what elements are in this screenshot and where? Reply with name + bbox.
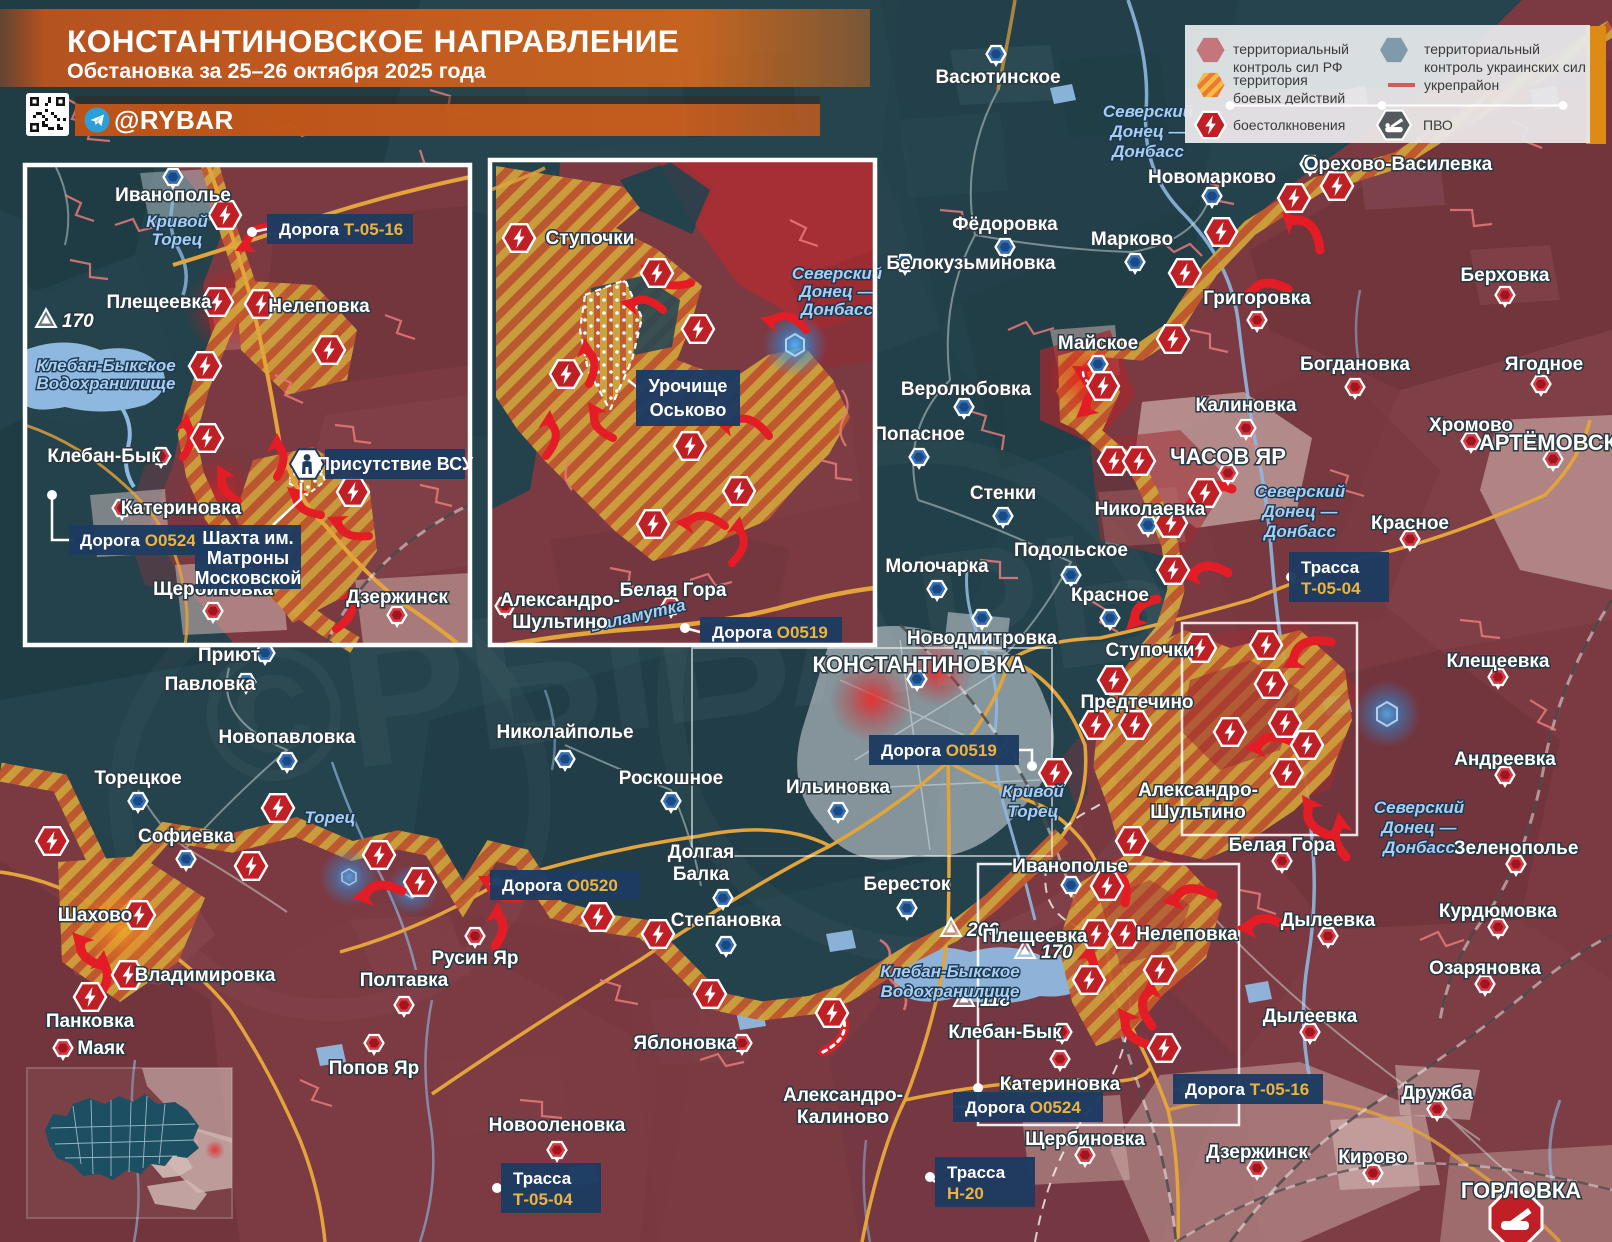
- svg-text:Щербиновка: Щербиновка: [1025, 1129, 1145, 1150]
- svg-text:контроль украинских сил: контроль украинских сил: [1424, 59, 1586, 75]
- svg-text:Донец —: Донец —: [1108, 122, 1186, 141]
- svg-text:Катериновка: Катериновка: [121, 498, 242, 519]
- svg-text:Шахово: Шахово: [58, 905, 132, 926]
- svg-text:Водохранилище: Водохранилище: [37, 374, 176, 393]
- svg-text:Плещеевка: Плещеевка: [107, 292, 212, 313]
- svg-text:Александро-: Александро-: [783, 1085, 903, 1106]
- svg-text:боестолкновения: боестолкновения: [1233, 117, 1345, 133]
- svg-text:Новодмитровка: Новодмитровка: [907, 628, 1058, 649]
- svg-text:Николайполье: Николайполье: [496, 722, 633, 743]
- svg-text:Степановка: Степановка: [671, 910, 782, 931]
- svg-text:Предтечино: Предтечино: [1080, 692, 1193, 713]
- svg-text:Донбасс: Донбасс: [1381, 838, 1455, 857]
- svg-text:АРТЁМОВСК: АРТЁМОВСК: [1479, 430, 1612, 455]
- svg-text:Дылеевка: Дылеевка: [1281, 910, 1376, 931]
- svg-text:Александро-: Александро-: [1138, 780, 1258, 801]
- svg-text:Клебан-Быкское: Клебан-Быкское: [880, 962, 1019, 981]
- svg-text:Северский: Северский: [1374, 798, 1465, 817]
- svg-text:Трасса: Трасса: [1301, 558, 1360, 577]
- svg-text:Кирово: Кирово: [1338, 1147, 1408, 1168]
- svg-text:Дружба: Дружба: [1401, 1083, 1473, 1104]
- svg-text:Владимировка: Владимировка: [135, 965, 276, 986]
- svg-text:Андреевка: Андреевка: [1454, 749, 1556, 770]
- svg-text:Орехово-Василевка: Орехово-Василевка: [1304, 154, 1493, 175]
- svg-text:ЧАСОВ ЯР: ЧАСОВ ЯР: [1170, 444, 1286, 469]
- svg-text:Плещеевка: Плещеевка: [983, 926, 1088, 947]
- svg-text:Белая Гора: Белая Гора: [620, 580, 727, 601]
- svg-text:Катериновка: Катериновка: [1000, 1074, 1121, 1095]
- svg-text:Нелеповка: Нелеповка: [268, 296, 370, 317]
- svg-text:Богдановка: Богдановка: [1300, 354, 1410, 375]
- svg-text:Клебан-Бык: Клебан-Бык: [948, 1022, 1062, 1043]
- svg-text:Шахта им.: Шахта им.: [202, 528, 293, 548]
- svg-text:Северский: Северский: [1255, 482, 1346, 501]
- svg-text:Курдюмовка: Курдюмовка: [1439, 901, 1558, 922]
- svg-text:Торецкое: Торецкое: [94, 768, 181, 789]
- svg-text:Попов Яр: Попов Яр: [329, 1058, 420, 1079]
- svg-text:Донбасс: Донбасс: [799, 300, 873, 319]
- svg-text:Донбасс: Донбасс: [1262, 522, 1336, 541]
- svg-text:Яблоновка: Яблоновка: [633, 1033, 737, 1054]
- svg-text:Дорога О0524: Дорога О0524: [965, 1098, 1081, 1117]
- svg-text:КОНСТАНТИНОВКА: КОНСТАНТИНОВКА: [812, 652, 1025, 677]
- svg-text:Трасса: Трасса: [947, 1163, 1006, 1182]
- svg-text:Матроны: Матроны: [207, 548, 289, 568]
- svg-text:Нелеповка: Нелеповка: [1136, 924, 1238, 945]
- svg-text:Стенки: Стенки: [970, 483, 1036, 504]
- svg-text:@RYBAR: @RYBAR: [114, 105, 234, 135]
- svg-text:Полтавка: Полтавка: [360, 970, 449, 991]
- svg-text:Панковка: Панковка: [46, 1011, 135, 1032]
- svg-text:Дорога О0519: Дорога О0519: [712, 623, 828, 642]
- svg-text:Красное: Красное: [1371, 513, 1449, 534]
- svg-text:Балка: Балка: [673, 864, 730, 885]
- svg-text:КОНСТАНТИНОВСКОЕ НАПРАВЛЕНИЕ: КОНСТАНТИНОВСКОЕ НАПРАВЛЕНИЕ: [67, 23, 679, 59]
- svg-text:Торец: Торец: [305, 808, 356, 827]
- svg-text:Донец —: Донец —: [797, 282, 875, 301]
- svg-text:Новопавловка: Новопавловка: [218, 727, 355, 748]
- svg-text:Софиевка: Софиевка: [138, 826, 234, 847]
- svg-text:ПВО: ПВО: [1423, 117, 1453, 133]
- svg-text:Фёдоровка: Фёдоровка: [952, 214, 1058, 235]
- svg-text:Александро-: Александро-: [500, 590, 620, 611]
- svg-text:Николаевка: Николаевка: [1095, 499, 1206, 520]
- svg-text:Приют: Приют: [198, 645, 260, 666]
- svg-text:Дорога О0524: Дорога О0524: [80, 531, 196, 550]
- svg-text:Веролюбовка: Веролюбовка: [901, 379, 1032, 400]
- svg-text:Белая Гора: Белая Гора: [1229, 835, 1336, 856]
- svg-text:Бересток: Бересток: [864, 874, 951, 895]
- svg-text:Майское: Майское: [1058, 333, 1138, 354]
- svg-text:Маяк: Маяк: [77, 1038, 125, 1059]
- svg-text:территория: территория: [1233, 72, 1308, 88]
- svg-text:Калиново: Калиново: [797, 1107, 889, 1128]
- svg-text:Клебан-Быкское: Клебан-Быкское: [36, 356, 175, 375]
- svg-text:Северский: Северский: [1103, 102, 1194, 121]
- svg-text:Московской: Московской: [195, 568, 302, 588]
- svg-text:Григоровка: Григоровка: [1203, 288, 1311, 309]
- svg-text:Т-05-04: Т-05-04: [513, 1190, 573, 1209]
- svg-text:Роскошное: Роскошное: [619, 768, 723, 789]
- svg-text:Трасса: Трасса: [513, 1169, 572, 1188]
- svg-text:Северский: Северский: [792, 264, 883, 283]
- svg-text:Дзержинск: Дзержинск: [346, 587, 448, 608]
- svg-text:Урочище: Урочище: [649, 376, 728, 396]
- svg-text:Клещеевка: Клещеевка: [1447, 651, 1550, 672]
- svg-text:Дорога О0520: Дорога О0520: [502, 876, 618, 895]
- svg-text:Молочарка: Молочарка: [885, 556, 989, 577]
- svg-text:Новооленовка: Новооленовка: [489, 1115, 626, 1136]
- svg-text:170: 170: [62, 311, 94, 332]
- svg-text:Новомарково: Новомарково: [1148, 167, 1276, 188]
- svg-text:Кривой: Кривой: [1002, 782, 1064, 801]
- svg-text:Иванополье: Иванополье: [1012, 856, 1128, 877]
- svg-text:Торец: Торец: [1008, 802, 1059, 821]
- svg-text:Водохранилище: Водохранилище: [881, 982, 1020, 1001]
- svg-text:Донец —: Донец —: [1260, 502, 1338, 521]
- svg-text:Торец: Торец: [152, 230, 203, 249]
- svg-text:Васютинское: Васютинское: [935, 67, 1060, 88]
- svg-text:Дорога Т-05-16: Дорога Т-05-16: [279, 220, 403, 239]
- svg-text:Ступочки: Ступочки: [546, 228, 635, 249]
- svg-text:ГОРЛОВКА: ГОРЛОВКА: [1461, 1178, 1581, 1203]
- svg-text:Долгая: Долгая: [668, 842, 735, 863]
- svg-text:Кривой: Кривой: [146, 212, 208, 231]
- svg-text:Донбасс: Донбасс: [1110, 142, 1184, 161]
- svg-text:Берховка: Берховка: [1460, 265, 1549, 286]
- svg-text:Белокузьминовка: Белокузьминовка: [886, 253, 1056, 274]
- svg-text:Н-20: Н-20: [947, 1184, 984, 1203]
- svg-text:Дылеевка: Дылеевка: [1263, 1006, 1358, 1027]
- svg-text:территориальный: территориальный: [1233, 41, 1349, 57]
- svg-text:Озаряновка: Озаряновка: [1429, 958, 1541, 979]
- svg-text:Присутствие ВСУ: Присутствие ВСУ: [317, 454, 474, 474]
- svg-text:Красное: Красное: [1071, 585, 1149, 606]
- svg-text:Подольское: Подольское: [1014, 540, 1128, 561]
- svg-text:территориальный: территориальный: [1424, 41, 1540, 57]
- svg-text:Дзержинск: Дзержинск: [1206, 1142, 1308, 1163]
- svg-text:Калиновка: Калиновка: [1196, 395, 1297, 416]
- svg-text:Ильиновка: Ильиновка: [786, 777, 890, 798]
- svg-text:укрепрайон: укрепрайон: [1424, 77, 1499, 93]
- svg-text:Т-05-04: Т-05-04: [1301, 579, 1361, 598]
- svg-text:Ступочки: Ступочки: [1106, 640, 1195, 661]
- svg-text:Иванополье: Иванополье: [115, 185, 231, 206]
- svg-text:Русин Яр: Русин Яр: [431, 948, 518, 969]
- svg-text:Дорога О0519: Дорога О0519: [881, 741, 997, 760]
- svg-text:Павловка: Павловка: [165, 674, 256, 695]
- svg-text:Клебан-Бык: Клебан-Бык: [47, 446, 161, 467]
- svg-text:Оськово: Оськово: [650, 400, 727, 420]
- svg-text:Шультино: Шультино: [1150, 802, 1246, 823]
- svg-text:Ягодное: Ягодное: [1505, 354, 1583, 375]
- svg-text:Дорога Т-05-16: Дорога Т-05-16: [1185, 1080, 1309, 1099]
- svg-text:Марково: Марково: [1091, 229, 1173, 250]
- svg-text:Донец —: Донец —: [1379, 818, 1457, 837]
- svg-text:боевых действий: боевых действий: [1233, 90, 1345, 106]
- svg-text:Попасное: Попасное: [873, 424, 965, 445]
- svg-text:Шультино: Шультино: [512, 612, 608, 633]
- svg-text:Зеленополье: Зеленополье: [1454, 838, 1579, 859]
- svg-text:Обстановка за 25–26 октября 20: Обстановка за 25–26 октября 2025 года: [67, 59, 487, 83]
